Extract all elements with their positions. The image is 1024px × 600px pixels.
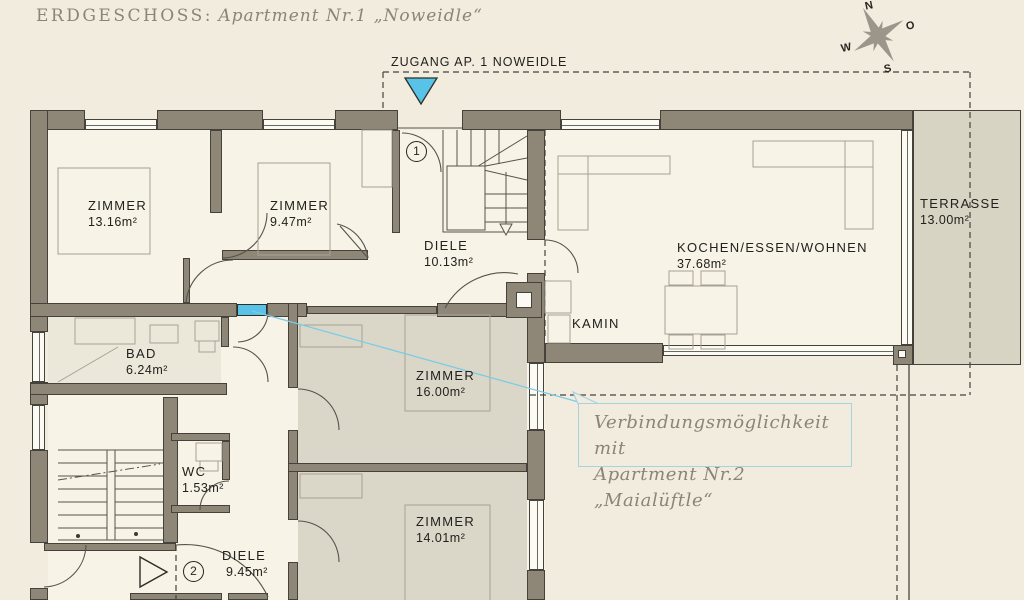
room-name: ZIMMER xyxy=(270,198,329,214)
room-label-zimmer3: ZIMMER 16.00m² xyxy=(416,368,475,400)
room-name: KOCHEN/ESSEN/WOHNEN xyxy=(677,240,868,256)
room-area: 37.68m² xyxy=(677,256,868,272)
annotation-box: Verbindungsmöglichkeit mit Apartment Nr.… xyxy=(578,403,852,467)
room-label-diele2: DIELE 9.45m² xyxy=(222,548,268,580)
room-name: TERRASSE xyxy=(920,196,1000,212)
room-label-zimmer1: ZIMMER 13.16m² xyxy=(88,198,147,230)
entrance-label: ZUGANG AP. 1 NOWEIDLE xyxy=(391,55,567,69)
room-name: KAMIN xyxy=(572,316,620,332)
floor-label: ERDGESCHOSS: xyxy=(36,6,213,26)
stair-down-arrow xyxy=(500,224,512,235)
room-area: 10.13m² xyxy=(424,254,473,270)
stair-marker-1: 1 xyxy=(406,141,427,162)
direction-triangle-icon xyxy=(140,557,167,587)
room-area: 13.00m² xyxy=(920,212,1000,228)
room-label-wc: WC 1.53m² xyxy=(182,464,224,496)
room-area: 16.00m² xyxy=(416,384,475,400)
compass-west-label: W xyxy=(840,41,853,55)
room-label-zimmer2: ZIMMER 9.47m² xyxy=(270,198,329,230)
entrance-arrow-icon xyxy=(405,78,437,104)
compass-east-label: O xyxy=(905,19,916,33)
room-label-diele1: DIELE 10.13m² xyxy=(424,238,473,270)
room-name: WC xyxy=(182,464,224,480)
room-area: 6.24m² xyxy=(126,362,168,378)
stairs-upper xyxy=(443,130,527,235)
room-label-terrasse: TERRASSE 13.00m² xyxy=(920,196,1000,228)
annotation-line1: Verbindungsmöglichkeit mit xyxy=(594,410,851,462)
room-name: ZIMMER xyxy=(416,514,475,530)
floorplan-page: ERDGESCHOSS: Apartment Nr.1 „Noweidle“ xyxy=(0,0,1024,600)
room-name: DIELE xyxy=(222,548,268,564)
dashed-boundary-lines xyxy=(176,72,970,600)
room-label-zimmer4: ZIMMER 14.01m² xyxy=(416,514,475,546)
stair-marker-2: 2 xyxy=(183,561,204,582)
annotation-line2: Apartment Nr.2 „Maialüftle“ xyxy=(594,462,851,514)
room-area: 9.47m² xyxy=(270,214,329,230)
room-name: BAD xyxy=(126,346,168,362)
room-area: 14.01m² xyxy=(416,530,475,546)
linework-overlay xyxy=(0,0,1024,600)
room-name: DIELE xyxy=(424,238,473,254)
room-label-wohnen: KOCHEN/ESSEN/WOHNEN 37.68m² xyxy=(677,240,868,272)
room-label-kamin: KAMIN xyxy=(572,316,620,332)
page-title: ERDGESCHOSS: Apartment Nr.1 „Noweidle“ xyxy=(36,6,483,26)
stairs-lower xyxy=(58,450,163,540)
room-area: 13.16m² xyxy=(88,214,147,230)
room-area: 1.53m² xyxy=(182,480,224,496)
room-name: ZIMMER xyxy=(88,198,147,214)
room-label-bad: BAD 6.24m² xyxy=(126,346,168,378)
apartment-name: Apartment Nr.1 „Noweidle“ xyxy=(218,6,482,26)
room-area: 9.45m² xyxy=(222,564,268,580)
compass-rose-icon xyxy=(838,0,918,76)
room-name: ZIMMER xyxy=(416,368,475,384)
